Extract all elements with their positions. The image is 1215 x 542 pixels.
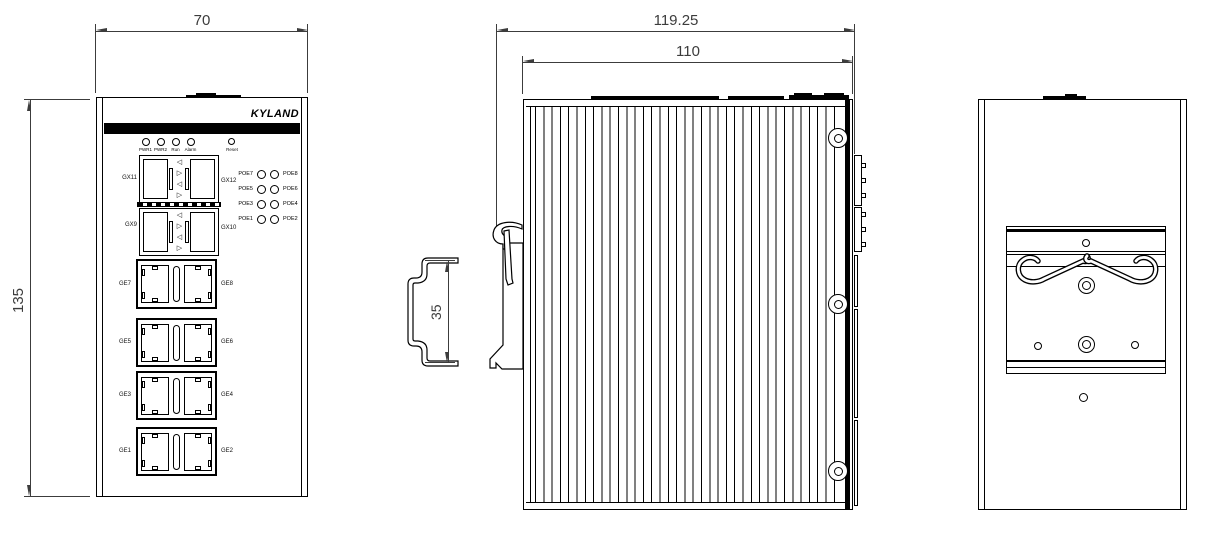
rj45-jack — [184, 433, 212, 471]
front-black-banner — [104, 123, 300, 134]
rear-hole — [1079, 393, 1088, 402]
spring-wire-left — [1018, 256, 1088, 282]
terminal-tooth — [861, 193, 866, 198]
rj45-port-block — [136, 318, 217, 367]
port-label-gx11: GX11 — [105, 175, 137, 182]
poe-label: POE3 — [232, 201, 255, 207]
rj45-latch — [208, 269, 211, 276]
rj45-jack — [184, 265, 212, 303]
port-label-ge1: GE1 — [103, 448, 131, 455]
poe-led-circle-icon — [257, 170, 266, 179]
led-label: PWR2 — [154, 147, 167, 153]
poe-led-row: POE5 POE6 — [232, 184, 308, 194]
edge-strip — [854, 309, 858, 418]
port-label-ge4: GE4 — [221, 392, 233, 399]
poe-label: POE5 — [232, 186, 255, 192]
dim-35-value: 35 — [428, 288, 444, 336]
rj45-latch — [208, 381, 211, 388]
poe-label: POE8 — [281, 171, 298, 177]
poe-label: POE7 — [232, 171, 255, 177]
sfp-slot — [190, 212, 215, 252]
rear-view — [978, 99, 1187, 510]
poe-led-circle-icon — [270, 215, 279, 224]
plate-hole — [1034, 342, 1042, 350]
poe-led-circle-icon — [270, 185, 279, 194]
triangle-icon: ◁ — [173, 232, 186, 243]
led-label: PWR1 — [139, 147, 152, 153]
sfp-arrow-icons: ◁ ▷ ◁ ▷ — [173, 157, 186, 201]
screw-hole-inner — [834, 300, 843, 309]
poe-led-circle-icon — [257, 215, 266, 224]
edge-strip — [854, 420, 858, 506]
dim-135-arrow-bottom-icon — [27, 485, 31, 496]
rj45-latch — [208, 351, 211, 358]
terminal-tooth — [861, 212, 866, 217]
status-led: PWR2 — [153, 138, 168, 153]
screw-hole-inner — [834, 134, 843, 143]
poe-led-circle-icon — [270, 200, 279, 209]
rj45-notch — [152, 357, 158, 361]
terminal-tooth — [861, 178, 866, 183]
port-divider-oval — [173, 266, 180, 302]
triangle-icon: ▷ — [173, 168, 186, 179]
sfp-port-block: ◁ ▷ ◁ ▷ — [139, 155, 219, 203]
side-top-strip — [591, 96, 719, 99]
rj45-notch — [152, 325, 158, 329]
dim-70-value: 70 — [96, 13, 308, 29]
rj45-notch — [195, 325, 201, 329]
rj45-port-block — [136, 259, 217, 309]
spring-wire-right — [1086, 256, 1156, 282]
rj45-notch — [152, 378, 158, 382]
edge-strip — [854, 255, 858, 307]
dim-110-line — [523, 62, 853, 63]
triangle-icon: ▷ — [173, 190, 186, 201]
dim-11925-value: 119.25 — [497, 13, 855, 29]
led-label: Alarm — [185, 147, 197, 153]
rj45-jack — [141, 324, 169, 362]
dim-35-ext-top — [425, 260, 455, 261]
rear-inner-line-right — [1180, 100, 1181, 509]
reset-label: Reset — [222, 147, 242, 152]
din-mount-plate — [1006, 226, 1166, 374]
front-inner-line-left — [102, 98, 103, 496]
rj45-latch — [208, 404, 211, 411]
led-label: Run — [171, 147, 179, 153]
front-top-tab — [196, 93, 216, 96]
poe-label: POE2 — [281, 216, 298, 222]
rj45-notch — [152, 266, 158, 270]
rj45-notch — [152, 466, 158, 470]
plate-bottom-band — [1007, 360, 1165, 362]
rj45-latch — [142, 404, 145, 411]
triangle-icon: ◁ — [173, 179, 186, 190]
dim-135-line — [30, 100, 31, 496]
dim-11925-ext-right — [854, 24, 855, 154]
plate-bottom-line — [1007, 367, 1165, 368]
dim-110-ext-right — [852, 56, 853, 94]
poe-led-circle-icon — [270, 170, 279, 179]
rj45-latch — [142, 381, 145, 388]
rj45-latch — [208, 437, 211, 444]
sfp-port-block: ◁ ▷ ◁ ▷ — [139, 208, 219, 256]
rj45-latch — [208, 460, 211, 467]
side-top-strip — [728, 96, 784, 99]
side-top-bump — [794, 93, 812, 95]
dim-11925-ext-left — [496, 24, 497, 229]
reset-button — [228, 138, 235, 145]
dim-11925-line — [497, 31, 855, 32]
port-label-gx9: GX9 — [105, 222, 137, 229]
dim-70-ext-right — [307, 24, 308, 93]
dim-35-line — [448, 261, 449, 363]
rj45-notch — [195, 410, 201, 414]
rj45-notch — [195, 266, 201, 270]
dim-70-line — [96, 31, 308, 32]
side-top-strip — [789, 95, 849, 99]
port-label-ge7: GE7 — [103, 281, 131, 288]
poe-led-circle-icon — [257, 200, 266, 209]
rj45-notch — [195, 434, 201, 438]
led-circle-icon — [157, 138, 165, 146]
dim-135-arrow-top-icon — [27, 100, 31, 111]
screw-hole-inner — [1082, 340, 1091, 349]
side-inner-line-bottom — [526, 502, 850, 503]
rj45-latch — [142, 292, 145, 299]
poe-led-circle-icon — [257, 185, 266, 194]
dim-35-arrow-bottom-icon — [445, 352, 449, 363]
status-led-group: PWR1 PWR2 Run Alarm — [138, 138, 198, 153]
rj45-jack — [141, 433, 169, 471]
dim-70-ext-left — [95, 24, 96, 93]
rj45-latch — [142, 437, 145, 444]
rj45-latch — [142, 351, 145, 358]
status-led: Alarm — [183, 138, 198, 153]
rj45-latch — [142, 328, 145, 335]
dim-135-value: 135 — [10, 268, 26, 332]
led-circle-icon — [172, 138, 180, 146]
rj45-notch — [195, 298, 201, 302]
port-label-ge5: GE5 — [103, 339, 131, 346]
rj45-port-block — [136, 371, 217, 420]
dim-35-arrow-top-icon — [445, 261, 449, 272]
plate-hole — [1082, 239, 1090, 247]
dim-110-ext-left — [522, 56, 523, 94]
poe-label: POE6 — [281, 186, 298, 192]
poe-label: POE1 — [232, 216, 255, 222]
rj45-jack — [184, 324, 212, 362]
terminal-tooth — [861, 242, 866, 247]
rj45-jack — [184, 377, 212, 415]
triangle-icon: ◁ — [173, 157, 186, 168]
triangle-icon: ▷ — [173, 243, 186, 254]
rj45-notch — [195, 357, 201, 361]
rj45-jack — [141, 265, 169, 303]
sfp-arrow-icons: ◁ ▷ ◁ ▷ — [173, 210, 186, 254]
port-label-ge2: GE2 — [221, 448, 233, 455]
screw-hole-inner — [834, 467, 843, 476]
terminal-tooth — [861, 163, 866, 168]
rj45-notch — [195, 378, 201, 382]
triangle-icon: ◁ — [173, 210, 186, 221]
sfp-slot — [190, 159, 215, 199]
dim-110-value: 110 — [523, 44, 853, 60]
led-circle-icon — [187, 138, 195, 146]
dim-135-ext-top — [24, 99, 90, 100]
port-divider-oval — [173, 434, 180, 470]
port-label-gx10: GX10 — [221, 225, 236, 232]
rj45-latch — [142, 269, 145, 276]
rj45-notch — [152, 410, 158, 414]
port-label-ge6: GE6 — [221, 339, 233, 346]
terminal-tooth — [861, 227, 866, 232]
sfp-slot — [143, 159, 168, 199]
sfp-slot — [143, 212, 168, 252]
sfp-dust-strip — [137, 202, 221, 207]
dimensional-drawing-canvas: 70 135 KYLAND PWR1 PWR2 Run Alarm Reset — [0, 0, 1215, 542]
rear-top-strip — [1043, 96, 1086, 99]
port-divider-oval — [173, 378, 180, 414]
heatsink-fins — [535, 107, 838, 502]
rj45-notch — [152, 298, 158, 302]
front-inner-line-right — [301, 98, 302, 496]
rj45-port-block — [136, 427, 217, 476]
status-led: Run — [168, 138, 183, 153]
led-circle-icon — [142, 138, 150, 146]
front-view: KYLAND PWR1 PWR2 Run Alarm Reset ◁ ▷ ◁ ▷ — [96, 97, 308, 497]
side-inner-line-left — [530, 106, 531, 503]
rj45-latch — [208, 328, 211, 335]
port-label-ge3: GE3 — [103, 392, 131, 399]
dim-135-ext-bottom — [24, 496, 90, 497]
poe-led-row: POE1 POE2 — [232, 214, 308, 224]
plate-hole — [1131, 341, 1139, 349]
poe-label: POE4 — [281, 201, 298, 207]
screw-hole-inner — [1082, 281, 1091, 290]
status-led: PWR1 — [138, 138, 153, 153]
rj45-latch — [142, 460, 145, 467]
rj45-jack — [141, 377, 169, 415]
triangle-icon: ▷ — [173, 221, 186, 232]
rj45-notch — [195, 466, 201, 470]
side-top-bump — [824, 93, 844, 95]
port-divider-oval — [173, 325, 180, 361]
poe-led-row: POE3 POE4 — [232, 199, 308, 209]
plate-top-band — [1007, 229, 1165, 232]
side-view — [523, 99, 853, 510]
din-clip — [487, 219, 523, 375]
dim-35-ext-bottom — [425, 362, 455, 363]
rj45-notch — [152, 434, 158, 438]
poe-led-row: POE7 POE8 — [232, 169, 308, 179]
rj45-latch — [208, 292, 211, 299]
rear-inner-line-left — [984, 100, 985, 509]
rear-top-bump — [1065, 94, 1077, 96]
port-label-ge8: GE8 — [221, 281, 233, 288]
brand-logo: KYLAND — [251, 108, 299, 120]
